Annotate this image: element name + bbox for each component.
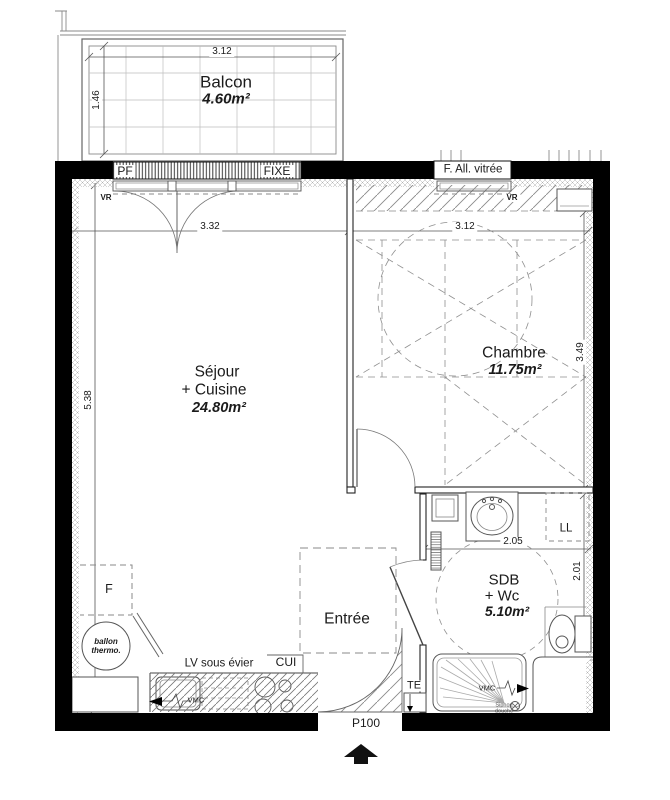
fridge-label: F <box>105 583 113 596</box>
window-glazed-label: F. All. vitrée <box>441 164 506 176</box>
interior-doors <box>115 191 423 645</box>
bathroom-name-line2: + Wc <box>485 589 520 604</box>
bathroom-door-leaf <box>390 567 423 645</box>
entry-door-swing <box>318 628 402 712</box>
water-heater-label-line2: thermo. <box>91 647 120 655</box>
dim-balcony-width: 3.12 <box>209 47 234 57</box>
floor-plan-drawing <box>0 0 670 800</box>
entrance-zone-dashes <box>300 548 396 653</box>
roller-shutter-left-label: VR <box>100 194 111 202</box>
balcony-name: Balcon <box>200 74 252 91</box>
technical-duct-box <box>533 657 593 712</box>
vent-kitchen-label: VMC <box>188 696 205 704</box>
site-context-lines <box>55 11 601 161</box>
bedroom-area: 11.75m² <box>489 363 542 378</box>
living-name-line1: Séjour <box>195 364 240 380</box>
living-name-line2: + Cuisine <box>181 382 246 398</box>
exterior-walls <box>55 161 610 731</box>
bedroom-name: Chambre <box>482 345 546 361</box>
entry-door-label: P100 <box>340 716 392 730</box>
washbasin-counter <box>466 492 518 541</box>
cooktop-label: CUI <box>276 656 297 668</box>
water-heater-label-line1: ballon <box>94 638 118 646</box>
floor-plan: Balcon 4.60m² 3.12 1.46 PF FIXE F. All. … <box>0 0 670 800</box>
shower-drain-label-line2: douche <box>495 709 513 715</box>
dishwasher-label: LV sous évier <box>185 658 254 670</box>
toilet-tank <box>575 616 591 652</box>
bedroom-wardrobe-box <box>557 189 592 211</box>
dim-bathroom-height: 2.01 <box>573 558 583 583</box>
dim-living-width: 3.32 <box>197 222 222 232</box>
kitchen-cabinet <box>72 677 138 712</box>
window-pf-label: PF <box>114 165 135 177</box>
window-fixed-label: FIXE <box>261 165 294 177</box>
dim-bathroom-width: 2.05 <box>500 537 525 547</box>
toilet-bowl <box>549 615 575 653</box>
entrance-arrow-icon <box>344 744 378 764</box>
dim-living-height: 5.38 <box>84 387 94 412</box>
angled-closet-front <box>133 613 163 657</box>
entrance-name: Entrée <box>324 611 370 627</box>
dim-bedroom-width: 3.12 <box>452 222 477 232</box>
living-area: 24.80m² <box>192 401 246 416</box>
bathroom-area: 5.10m² <box>485 604 529 618</box>
bedroom-furniture-dashes <box>356 222 586 485</box>
balcony-area: 4.60m² <box>202 92 250 107</box>
washing-machine-label: LL <box>560 523 573 535</box>
electrical-panel-box <box>404 693 426 712</box>
roller-shutter-right-label: VR <box>503 194 520 202</box>
electrical-panel-label: TE <box>404 681 424 692</box>
dim-balcony-depth: 1.46 <box>92 87 102 112</box>
towel-radiator <box>431 532 441 570</box>
bathroom-name-line1: SDB <box>489 573 520 588</box>
dim-bedroom-height: 3.49 <box>576 339 586 364</box>
vent-shower-label: VMC <box>479 684 496 692</box>
